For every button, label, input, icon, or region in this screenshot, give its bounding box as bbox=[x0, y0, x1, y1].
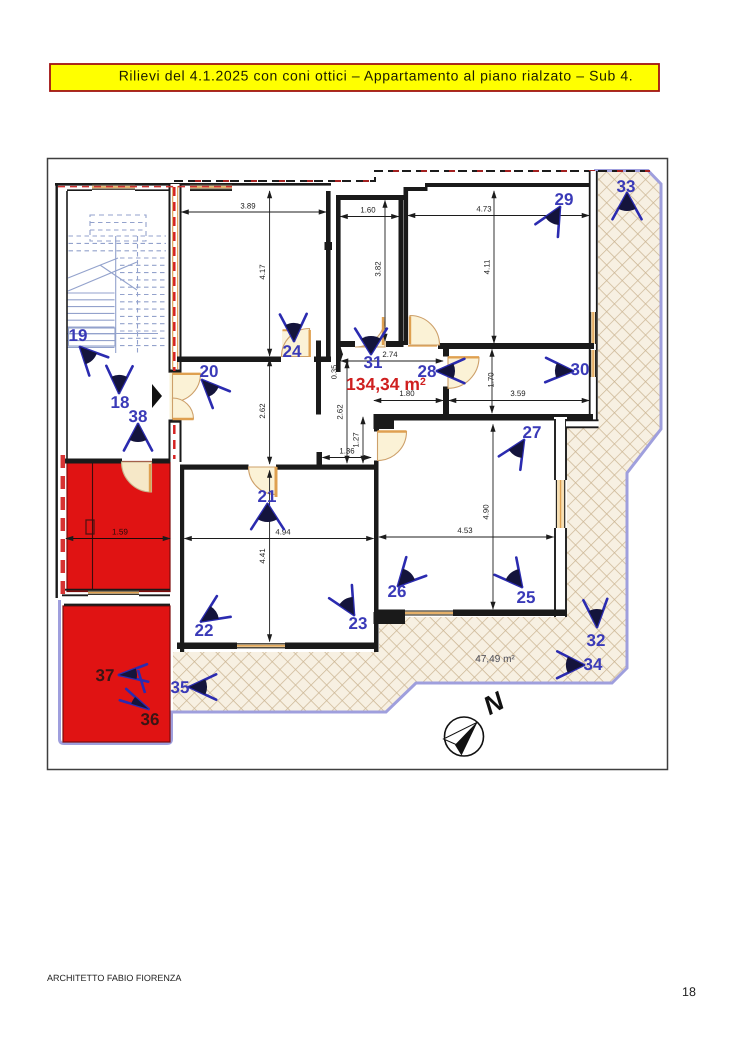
svg-text:22: 22 bbox=[195, 621, 214, 640]
svg-text:4.90: 4.90 bbox=[482, 504, 491, 520]
svg-text:27: 27 bbox=[523, 423, 542, 442]
svg-text:1.70: 1.70 bbox=[487, 372, 496, 388]
svg-text:3.59: 3.59 bbox=[510, 389, 525, 398]
svg-text:37: 37 bbox=[96, 666, 115, 685]
svg-text:26: 26 bbox=[388, 582, 407, 601]
svg-text:33: 33 bbox=[617, 177, 636, 196]
svg-text:4.17: 4.17 bbox=[258, 264, 267, 279]
svg-text:18: 18 bbox=[682, 985, 696, 999]
svg-text:24: 24 bbox=[283, 342, 302, 361]
svg-text:25: 25 bbox=[517, 588, 536, 607]
svg-text:1.27: 1.27 bbox=[352, 432, 361, 447]
svg-text:32: 32 bbox=[587, 631, 606, 650]
svg-text:21: 21 bbox=[258, 487, 277, 506]
svg-text:20: 20 bbox=[200, 362, 219, 381]
svg-text:23: 23 bbox=[349, 614, 368, 633]
svg-text:4.41: 4.41 bbox=[258, 548, 267, 563]
svg-text:0.35: 0.35 bbox=[330, 365, 339, 379]
svg-text:2.74: 2.74 bbox=[382, 350, 398, 359]
svg-text:Rilievi del 4.1.2025 con coni: Rilievi del 4.1.2025 con coni ottici – A… bbox=[119, 68, 634, 84]
svg-text:2.62: 2.62 bbox=[258, 403, 267, 418]
svg-text:2.62: 2.62 bbox=[336, 404, 345, 419]
svg-text:18: 18 bbox=[111, 393, 130, 412]
svg-text:3.82: 3.82 bbox=[374, 261, 383, 276]
svg-text:1.36: 1.36 bbox=[339, 447, 354, 456]
svg-text:38: 38 bbox=[129, 407, 148, 426]
svg-text:19: 19 bbox=[69, 326, 88, 345]
svg-text:47,49 m²: 47,49 m² bbox=[475, 654, 515, 665]
svg-text:3.89: 3.89 bbox=[240, 202, 255, 211]
svg-text:4.11: 4.11 bbox=[483, 260, 492, 275]
svg-text:34: 34 bbox=[584, 655, 603, 674]
svg-text:134,34 m2: 134,34 m2 bbox=[346, 374, 426, 394]
svg-text:30: 30 bbox=[571, 360, 590, 379]
svg-text:4.53: 4.53 bbox=[457, 526, 472, 535]
svg-text:36: 36 bbox=[141, 710, 160, 729]
svg-text:4.73: 4.73 bbox=[476, 205, 491, 214]
svg-text:1.60: 1.60 bbox=[360, 206, 376, 215]
svg-text:35: 35 bbox=[171, 678, 190, 697]
svg-text:ARCHITETTO FABIO FIORENZA: ARCHITETTO FABIO FIORENZA bbox=[47, 973, 181, 983]
svg-text:1.59: 1.59 bbox=[112, 528, 128, 537]
svg-text:29: 29 bbox=[555, 190, 574, 209]
svg-text:31: 31 bbox=[364, 353, 383, 372]
